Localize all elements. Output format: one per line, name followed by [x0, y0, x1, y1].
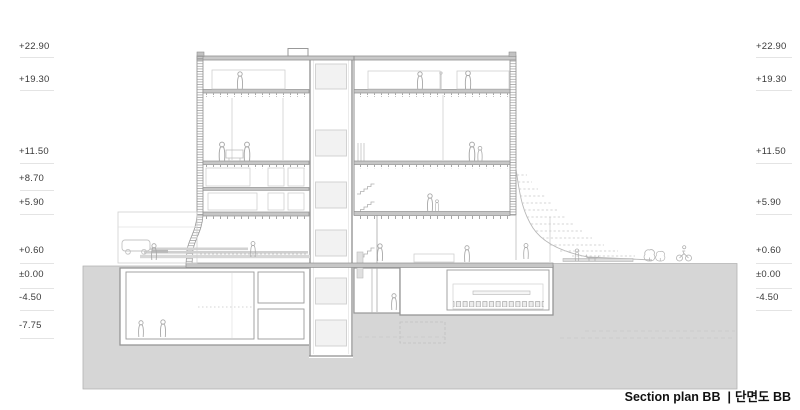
- person-figure: [237, 72, 242, 89]
- person-figure: [427, 194, 432, 211]
- auditorium-seats: [453, 301, 544, 308]
- person-figure: [478, 146, 482, 161]
- caption-ko: 단면도 BB: [735, 390, 791, 404]
- roof-penthouse: [288, 49, 308, 57]
- elevator-shaft: [309, 56, 353, 358]
- basement-hall: [126, 272, 254, 339]
- person-figure: [465, 246, 470, 262]
- left-exterior-wall: [197, 56, 203, 215]
- terrace-paving: [150, 248, 248, 251]
- caption-en: Section plan BB: [625, 390, 721, 404]
- building-superstructure: [186, 49, 553, 268]
- person-figure: [244, 142, 250, 161]
- building-section-drawing: [0, 0, 800, 410]
- section-drawing-page: +22.90+19.30+11.50+8.70+5.90+0.60±0.00-4…: [0, 0, 800, 410]
- bicycle-figure: [677, 246, 692, 261]
- auditorium-screen: [473, 291, 530, 295]
- person-figure: [469, 142, 475, 161]
- terraced-cascade: [516, 168, 652, 260]
- person-figure: [219, 142, 225, 161]
- basement-room-upper: [258, 272, 304, 303]
- reception-desk: [414, 254, 454, 262]
- shrub-figure: [656, 251, 665, 261]
- basement-left: [120, 268, 310, 345]
- floor-slabs: [186, 90, 553, 268]
- gallery-artwork: [226, 150, 243, 161]
- basement-room-lower: [258, 309, 304, 339]
- right-exterior-wall: [510, 60, 516, 215]
- person-figure: [465, 71, 470, 89]
- person-figure: [524, 244, 529, 259]
- person-figure: [251, 242, 256, 257]
- person-figure: [377, 244, 382, 261]
- person-figure: [435, 200, 438, 211]
- ceiling-ticks: [205, 94, 508, 220]
- person-figure: [417, 72, 422, 89]
- drawing-caption: Section plan BB|단면도 BB: [625, 386, 791, 405]
- sidewalk-slab: [563, 259, 633, 262]
- roof-slab: [197, 56, 516, 60]
- parapet-cap-right: [509, 52, 516, 57]
- ground-floor-slab: [186, 263, 553, 268]
- caption-separator: |: [727, 390, 731, 404]
